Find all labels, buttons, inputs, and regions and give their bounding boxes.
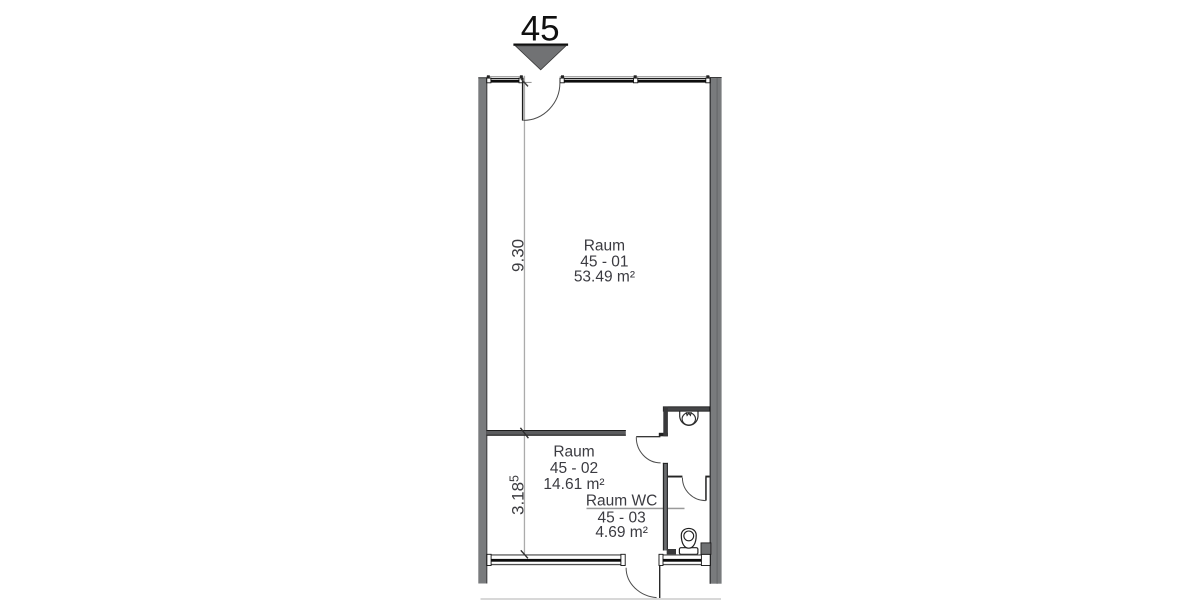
svg-text:Raum WC: Raum WC — [586, 493, 657, 510]
svg-text:45 - 02: 45 - 02 — [550, 460, 598, 477]
svg-text:53.49 m²: 53.49 m² — [574, 268, 635, 285]
svg-text:Raum: Raum — [553, 444, 594, 461]
svg-text:9.30: 9.30 — [509, 239, 528, 272]
svg-text:Raum: Raum — [584, 237, 625, 254]
svg-text:45: 45 — [521, 9, 560, 48]
svg-text:4.69 m²: 4.69 m² — [595, 524, 648, 541]
svg-text:14.61 m²: 14.61 m² — [543, 476, 604, 493]
